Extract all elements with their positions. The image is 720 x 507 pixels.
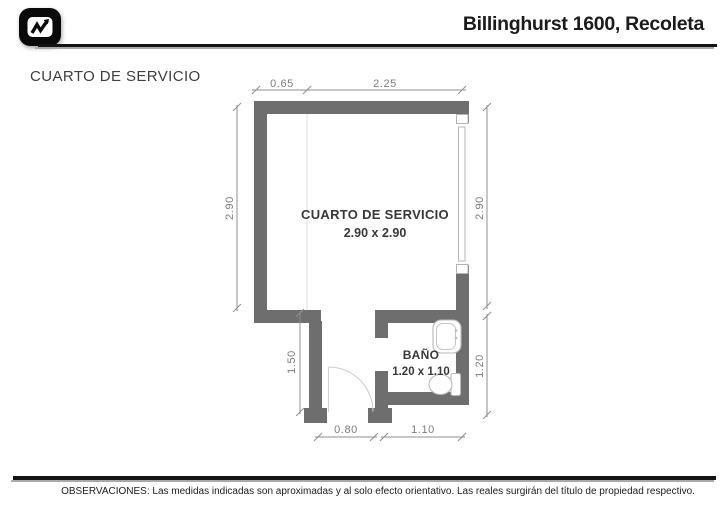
room-size-service: 2.90 x 2.90 [344, 226, 407, 240]
dim-label-right-upper: 2.90 [474, 196, 486, 220]
sink-faucet-dot [455, 337, 458, 340]
page-title: Billinghurst 1600, Recoleta [463, 13, 704, 36]
footer-rule-shadow [11, 480, 714, 482]
room-size-bath: 1.20 x 1.10 [392, 366, 450, 378]
door-swing-arc [329, 367, 374, 412]
dim-label-bottom-left: 0.80 [334, 424, 358, 436]
chart-pulse-icon [18, 7, 62, 47]
wall-bath-left-upper [375, 323, 388, 338]
door [329, 367, 374, 412]
observations-text: OBSERVACIONES: Las medidas indicadas son… [38, 486, 718, 497]
dim-label-right-lower: 1.20 [474, 354, 486, 378]
logo [18, 7, 62, 47]
room-label-bath: BAÑO [403, 347, 440, 362]
window-cap-top [457, 115, 469, 124]
wall-left [254, 101, 267, 322]
header-rule-shadow [35, 47, 714, 49]
wall-bath-left-foot [368, 408, 392, 423]
dim-label-corridor: 1.50 [286, 350, 298, 374]
window-cap-bottom [457, 265, 469, 274]
wall-corridor-left-foot [304, 408, 327, 423]
wall-corridor-left [309, 321, 322, 415]
window-pane [459, 127, 466, 261]
room-label-service: CUARTO DE SERVICIO [301, 207, 449, 222]
dim-label-top-right: 2.25 [373, 78, 397, 90]
dim-label-left: 2.90 [224, 196, 236, 220]
window [456, 115, 470, 274]
sink-faucet-dot [455, 329, 458, 332]
floor-plan-page: Billinghurst 1600, Recoleta CUARTO DE SE… [0, 0, 720, 507]
dim-label-top-left: 0.65 [270, 78, 294, 90]
floor-plan-drawing: 0.65 2.25 2.90 2.90 1.20 1.50 [0, 50, 720, 457]
dim-label-bottom-right: 1.10 [411, 424, 435, 436]
wall-top [254, 101, 469, 114]
room-labels: CUARTO DE SERVICIO 2.90 x 2.90 BAÑO 1.20… [301, 207, 450, 378]
